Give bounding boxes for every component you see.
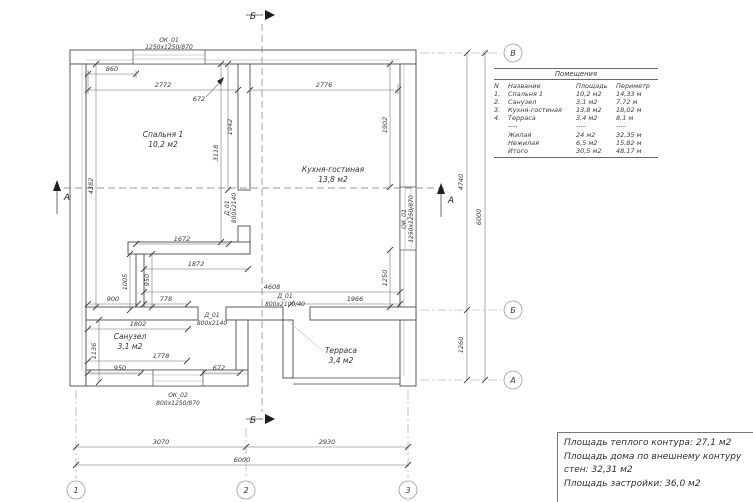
section-marker-a-left: А [53,180,70,214]
axis-bubble-2: 2 [243,486,248,495]
room-bathroom-name: Санузел [114,332,147,341]
dim-2772: 2772 [155,81,172,89]
dimension-texts: 860 2772 2776 672 4382 1942 3118 1902 12… [87,65,483,464]
room-terrace-area: 3,4 м2 [329,356,354,365]
table-row: 13,8 м2 [576,106,616,114]
window-bottom-size: 800х1250/870 [156,400,200,407]
window-top-size: 1250х1250/870 [145,44,193,51]
table-row: Спальня 1 [508,90,576,98]
table-separator: ---- [576,122,616,130]
section-marker-a-right: А [437,183,454,217]
floor-plan-drawing: Б Б А А 1 2 3 В Б А [0,0,753,502]
section-label-b-bottom: Б [250,416,256,426]
summary-line-footprint-area: Площадь застройки: 36,0 м2 [564,478,753,492]
dim-1872: 1872 [188,260,205,268]
table-total-row: 32,35 м [616,131,658,139]
door-bathroom-size: 800х2140 [197,320,227,327]
table-row: 7,72 м [616,98,658,106]
dim-860: 860 [106,65,118,73]
table-row: Кухня-гостиная [508,106,576,114]
rooms-table-header-area: Площадь [576,82,616,90]
dim-3118: 3118 [212,145,220,162]
window-top-code: ОК_01 [159,37,179,44]
section-label-a-right: А [447,196,454,206]
axis-bubble-b: Б [510,306,516,315]
dim-1260: 1260 [457,337,465,354]
dim-4740: 4740 [457,174,465,191]
door-terrace-size: 800х2100/40 [265,301,305,308]
terrace-edge [293,378,400,384]
table-total-row [494,131,508,139]
rooms-table: Помещения N Название Площадь Периметр 1.… [494,68,658,158]
rooms-table-header-perimeter: Периметр [616,82,658,90]
table-total-row: 48,17 м [616,147,658,155]
table-row: 1. [494,90,508,98]
table-total-row [494,139,508,147]
door-bedroom-size: 800х2140 [231,193,238,223]
axis-bubble-1: 1 [73,486,78,495]
table-total-row: 6,5 м2 [576,139,616,147]
table-total-row: 24 м2 [576,131,616,139]
window-right-code: ОК_01 [401,209,408,229]
dim-1802: 1802 [130,320,147,328]
opening-labels: ОК_01 1250х1250/870 ОК_01 1250х1250/870 … [145,37,415,407]
axis-bubble-a: А [509,376,515,385]
axis-bubble-v: В [510,49,516,58]
summary-line-outer-contour-area: Площадь дома по внешнему контуру стен: 3… [564,451,753,478]
table-total-row: 15,82 м [616,139,658,147]
table-row: 3,4 м2 [576,114,616,122]
dim-4382: 4382 [87,178,95,195]
window-bottom-code: ОК_02 [168,392,188,399]
dim-3070: 3070 [153,438,170,446]
dim-6000-right: 6000 [475,209,483,226]
dim-2930: 2930 [319,438,336,446]
table-total-row [494,147,508,155]
table-row: 14,33 м [616,90,658,98]
table-total-row: 30,5 м2 [576,147,616,155]
dim-1902: 1902 [381,117,389,134]
table-total-row: Нежилая [508,139,576,147]
dim-1672: 1672 [174,235,191,243]
window-right-size: 1250х1250/870 [408,195,415,243]
door-terrace-code: Д_01 [276,293,292,300]
area-summary: Площадь теплого контура: 27,1 м2 Площадь… [557,432,753,502]
table-total-row: Итого [508,147,576,155]
summary-line-heated-area: Площадь теплого контура: 27,1 м2 [564,437,753,451]
door-bathroom-code: Д_01 [203,312,219,319]
door-bedroom-code: Д_01 [224,200,231,216]
window-bottom [153,370,203,386]
interior-walls [86,64,416,378]
dimension-lines [73,50,488,468]
section-label-a-left: А [63,193,70,203]
room-bedroom-name: Спальня 1 [143,130,184,139]
section-marker-b-bottom: Б [246,414,275,426]
dim-778: 778 [160,295,172,303]
dim-1136: 1136 [90,343,98,360]
table-total-row: Жилая [508,131,576,139]
dim-2776: 2776 [316,81,333,89]
room-bedroom-area: 10,2 м2 [148,140,178,149]
table-separator: ---- [508,122,576,130]
table-row: Терраса [508,114,576,122]
section-lines [64,24,444,412]
table-row: 10,2 м2 [576,90,616,98]
dim-950-bottom: 950 [114,364,126,372]
dim-1778: 1778 [153,352,170,360]
rooms-table-header-n: N [494,82,508,90]
section-label-b-top: Б [250,12,256,22]
table-row: 2. [494,98,508,106]
axis-bubbles: 1 2 3 В Б А [67,44,522,499]
table-row: 3. [494,106,508,114]
room-kitchen-area: 13,8 м2 [318,175,348,184]
dim-1005: 1005 [121,274,129,291]
rooms-table-header-name: Название [508,82,576,90]
table-row: 8,1 м [616,114,658,122]
dim-900: 900 [107,295,119,303]
table-separator: ---- [616,122,658,130]
table-separator [494,122,508,130]
dim-672-bottom: 672 [213,364,225,372]
room-terrace-name: Терраса [325,346,357,355]
room-kitchen-name: Кухня-гостиная [302,165,365,174]
dim-672-top: 672 [193,95,205,103]
dim-1250: 1250 [381,270,389,287]
window-top [133,50,205,64]
dim-1942: 1942 [226,119,234,136]
table-row: 3,1 м2 [576,98,616,106]
room-bathroom-area: 3,1 м2 [118,342,143,351]
table-row: 4. [494,114,508,122]
axis-bubble-3: 3 [405,486,410,495]
dim-4608: 4608 [264,283,281,291]
section-marker-b-top: Б [246,10,275,22]
table-row: 18,02 м [616,106,658,114]
rooms-table-title: Помещения [494,68,658,80]
dim-950-hall: 950 [143,274,151,286]
dim-6000-bottom: 6000 [234,456,251,464]
dim-1966: 1966 [347,295,364,303]
table-row: Санузел [508,98,576,106]
